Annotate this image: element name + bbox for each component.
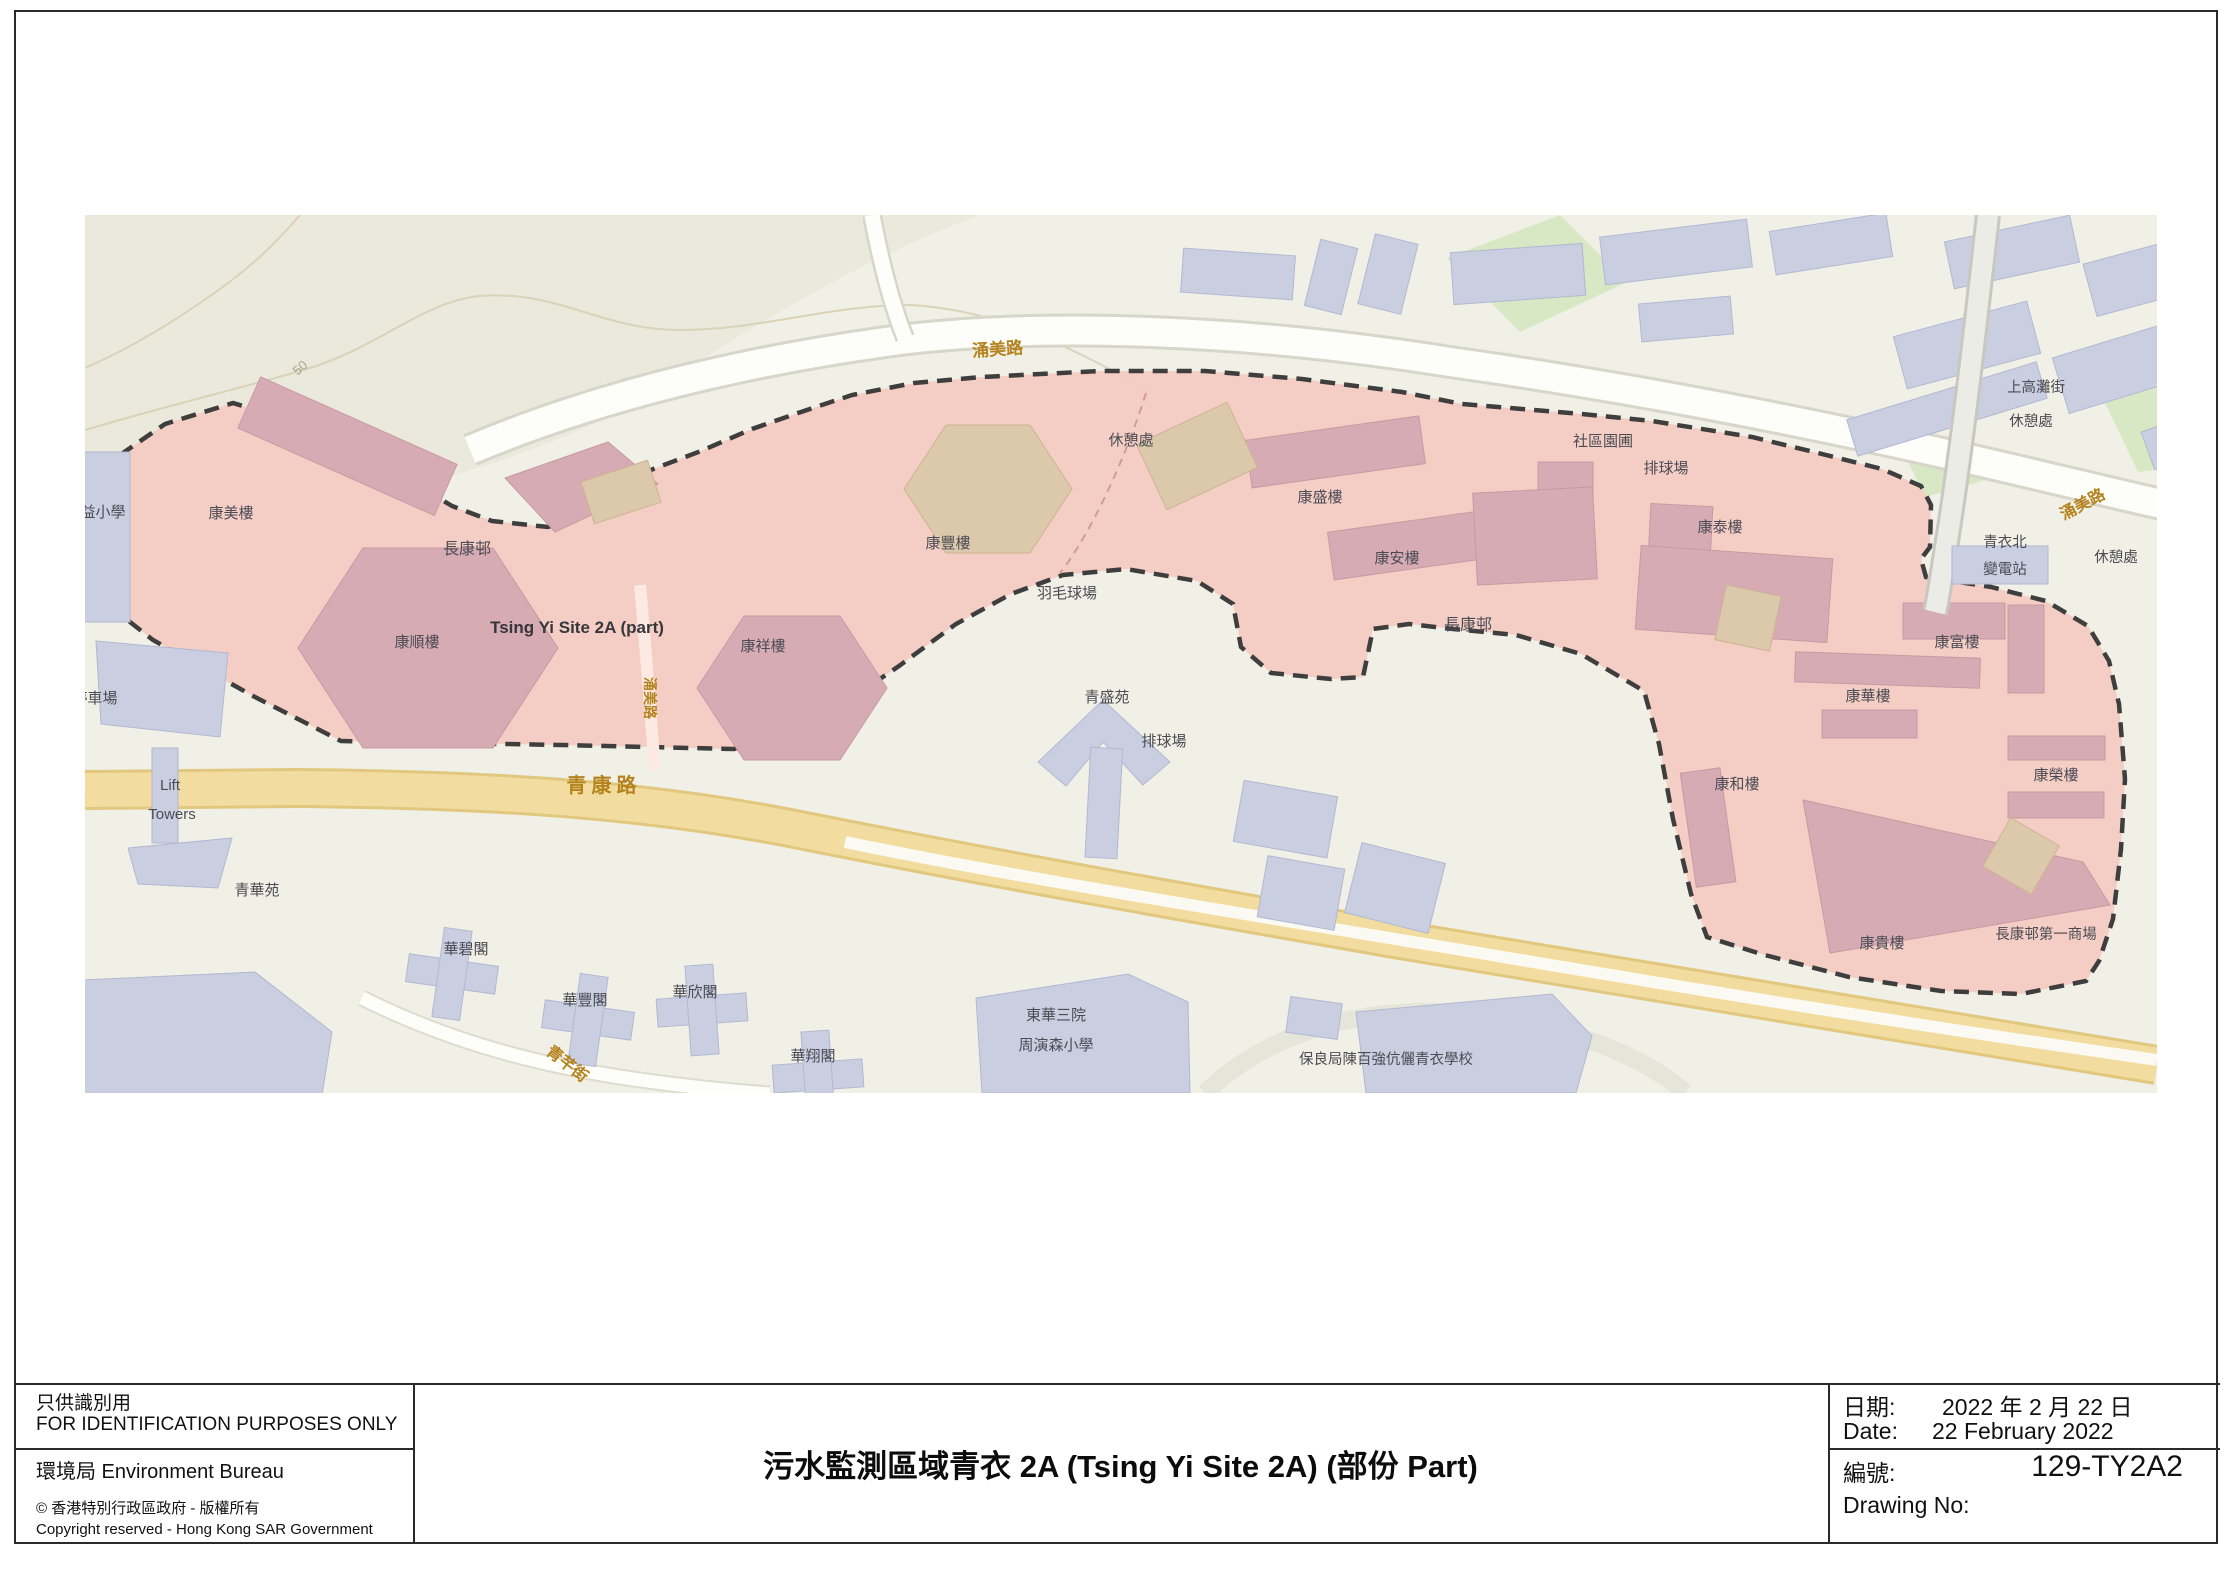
map-label: 東華三院	[1026, 1006, 1086, 1024]
building	[2008, 605, 2044, 693]
map-label: 變電站	[1983, 561, 2027, 578]
building	[1181, 248, 1296, 300]
date-value-en: 22 February 2022	[1932, 1418, 2114, 1445]
map-label: 社區園圃	[1573, 433, 1633, 450]
map-label: 康榮樓	[2033, 767, 2078, 784]
building-carpark	[96, 641, 228, 737]
map-label: 休憩處	[2009, 413, 2053, 430]
site-map: 停車場益小學康美樓長康邨康順樓Tsing Yi Site 2A (part)康豐…	[85, 215, 2157, 1093]
map-label: 周演森小學	[1018, 1036, 1093, 1054]
drawing-no-label-zh: 編號:	[1843, 1454, 1895, 1488]
map-container: 停車場益小學康美樓長康邨康順樓Tsing Yi Site 2A (part)康豐…	[85, 215, 2157, 1093]
map-label: 康順樓	[394, 634, 439, 651]
building	[1257, 856, 1345, 931]
map-label: 青盛苑	[1084, 689, 1129, 706]
copyright-en: Copyright reserved - Hong Kong SAR Gover…	[36, 1521, 373, 1538]
road-label: 涌美路	[971, 337, 1024, 361]
building	[2008, 792, 2104, 818]
map-label: 康華樓	[1845, 688, 1890, 705]
map-label: 康和樓	[1714, 776, 1759, 793]
map-label: 休憩處	[1108, 432, 1153, 449]
date-label-zh: 日期:	[1843, 1388, 1895, 1422]
map-label: 康美樓	[208, 505, 253, 522]
building	[1795, 652, 1981, 688]
map-label: 長康邨第一商場	[1995, 925, 2097, 943]
map-label: 排球場	[1643, 460, 1688, 477]
map-label: 休憩處	[2094, 549, 2138, 566]
drawing-no-value: 129-TY2A2	[2031, 1450, 2183, 1484]
date-value-zh: 2022 年 2 月 22 日	[1942, 1388, 2133, 1422]
building	[1473, 487, 1598, 585]
date-label-en: Date:	[1843, 1418, 1898, 1445]
map-label: 華翔閣	[790, 1048, 835, 1065]
map-label: 康豐樓	[925, 535, 970, 552]
identification-note-en: FOR IDENTIFICATION PURPOSES ONLY	[36, 1414, 397, 1436]
road-label: 青康路	[567, 773, 642, 797]
site-area-label: Tsing Yi Site 2A (part)	[490, 618, 664, 637]
map-label: 上高灘街	[2007, 379, 2065, 396]
identification-note-zh: 只供識別用	[36, 1388, 131, 1415]
map-label: 長康邨	[1444, 616, 1492, 634]
building	[2008, 736, 2105, 760]
titleblock-divider	[1828, 1383, 1830, 1544]
map-label: 停車場	[85, 690, 118, 707]
drawing-title-cell: 污水監測區域青衣 2A (Tsing Yi Site 2A) (部份 Part)	[413, 1383, 1828, 1544]
building-school	[1356, 994, 1592, 1093]
map-label: 排球場	[1141, 733, 1186, 750]
building	[1822, 710, 1917, 738]
building	[1286, 997, 1343, 1040]
drawing-no-label-en: Drawing No:	[1843, 1492, 1970, 1519]
road-label: 涌美路	[642, 677, 658, 720]
map-label: 康泰樓	[1697, 519, 1742, 536]
building	[1639, 296, 1734, 342]
map-label: 長康邨	[443, 540, 491, 558]
map-label: 青華苑	[234, 882, 279, 899]
map-label: Lift	[160, 777, 181, 794]
map-label: 康安樓	[1374, 550, 1419, 567]
map-label: 益小學	[85, 503, 126, 521]
map-label: 華碧閣	[443, 941, 488, 958]
building	[1085, 747, 1123, 859]
drawing-title: 污水監測區域青衣 2A (Tsing Yi Site 2A) (部份 Part)	[763, 1441, 1478, 1486]
map-label: 康盛樓	[1297, 489, 1342, 506]
map-label: 康貴樓	[1859, 935, 1904, 952]
titleblock-divider	[14, 1448, 415, 1450]
map-label: 羽毛球場	[1037, 585, 1097, 602]
map-label: 青衣北	[1983, 534, 2027, 551]
map-label: 康富樓	[1934, 633, 1979, 651]
lift-tower	[152, 748, 178, 843]
map-label: Towers	[148, 806, 196, 823]
building	[1715, 585, 1781, 651]
map-label: 華豐閣	[562, 992, 607, 1009]
map-label: 華欣閣	[672, 984, 717, 1001]
map-label: 康祥樓	[740, 638, 785, 655]
building	[1450, 243, 1585, 304]
map-label: 保良局陳百強伉儷青衣學校	[1299, 1050, 1473, 1068]
bureau-name: 環境局 Environment Bureau	[36, 1455, 284, 1484]
copyright-zh: © 香港特別行政區政府 - 版權所有	[36, 1497, 260, 1518]
drawing-page: 停車場益小學康美樓長康邨康順樓Tsing Yi Site 2A (part)康豐…	[0, 0, 2235, 1573]
building-school	[85, 452, 130, 622]
